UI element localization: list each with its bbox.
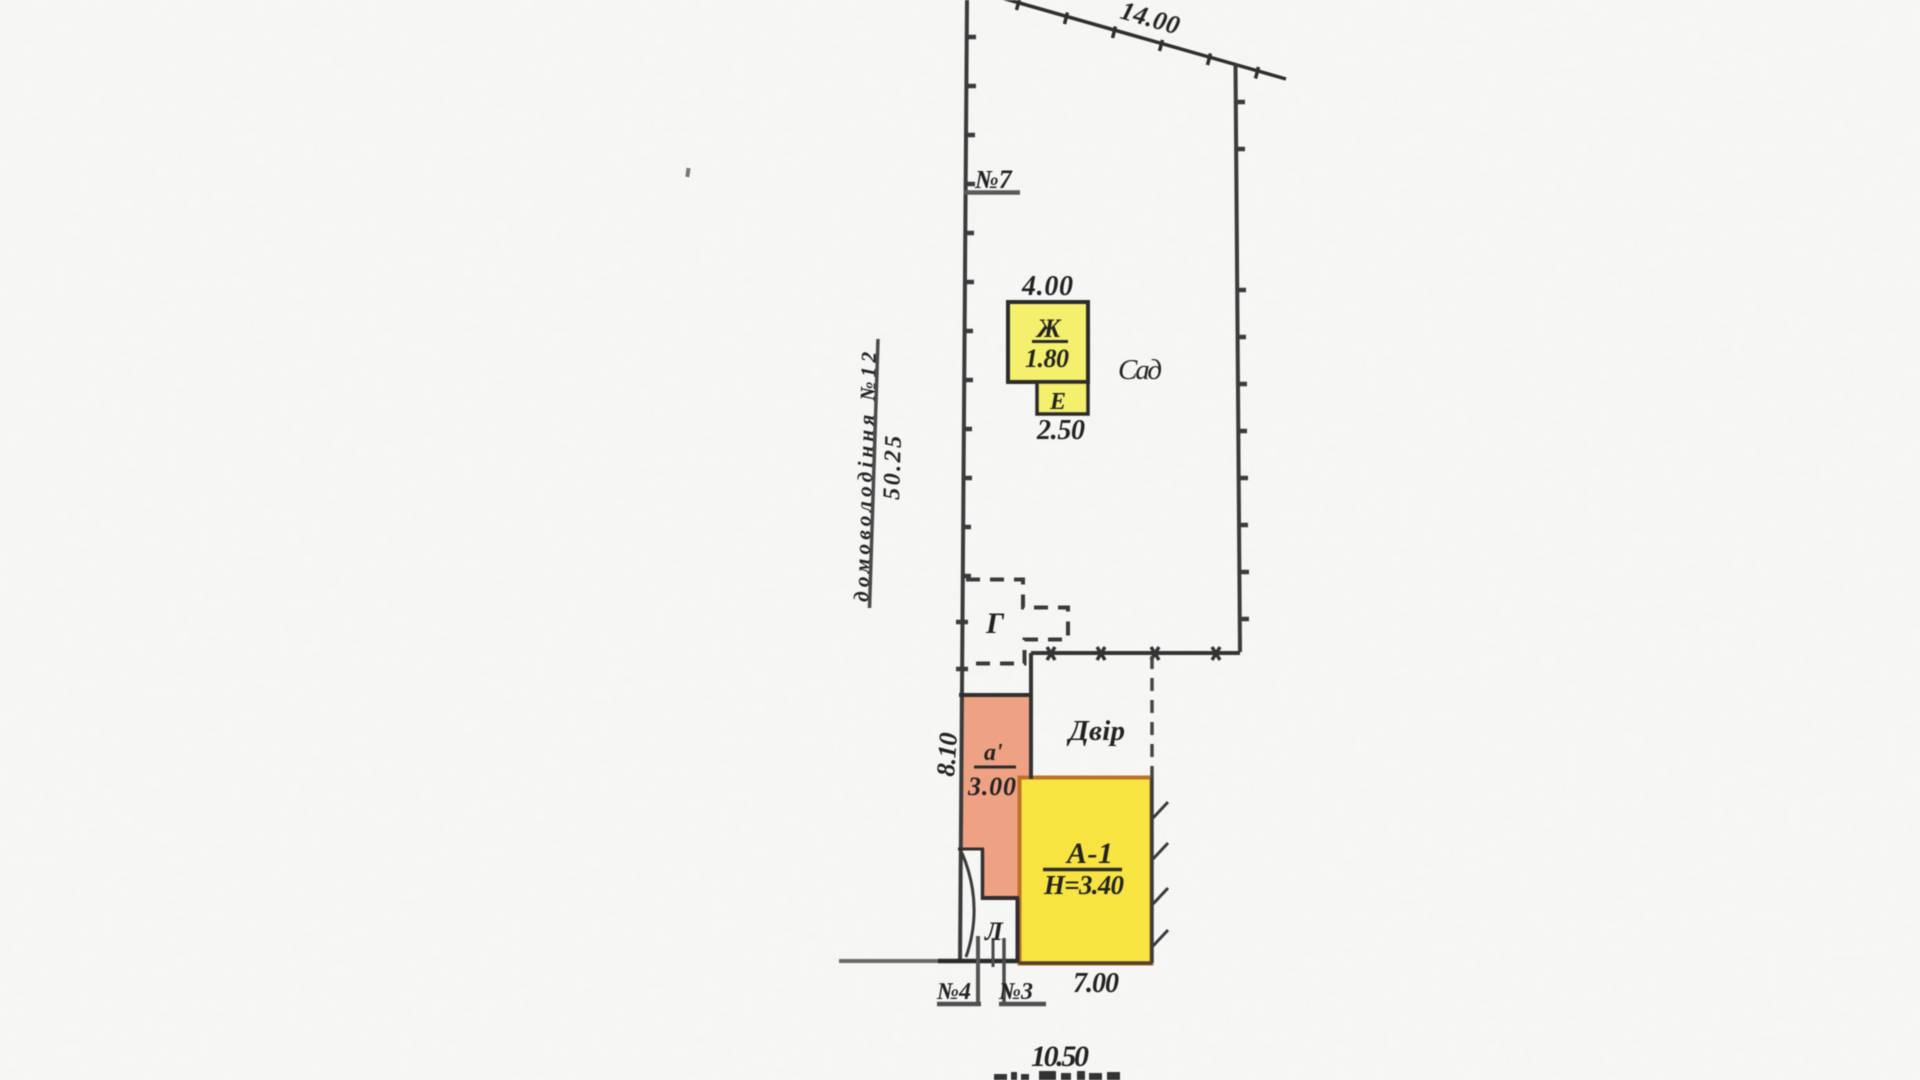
svg-text:Е: Е bbox=[1049, 389, 1066, 415]
svg-text:№7: №7 bbox=[974, 165, 1013, 194]
svg-text:Двір: Двір bbox=[1066, 715, 1125, 747]
svg-text:№4: №4 bbox=[936, 979, 971, 1005]
svg-text:Ж: Ж bbox=[1035, 314, 1062, 343]
svg-text:№3: №3 bbox=[998, 979, 1033, 1005]
svg-text:8.10: 8.10 bbox=[931, 732, 963, 778]
svg-text:1.80: 1.80 bbox=[1025, 344, 1069, 373]
svg-text:4.00: 4.00 bbox=[1021, 271, 1073, 302]
svg-text:Г: Г bbox=[985, 607, 1005, 640]
svg-text:10.50: 10.50 bbox=[1031, 1040, 1089, 1073]
svg-text:3.00: 3.00 bbox=[967, 772, 1016, 801]
svg-text:7.00: 7.00 bbox=[1073, 968, 1119, 999]
svg-text:а': а' bbox=[984, 740, 1003, 766]
svg-text:Сад: Сад bbox=[1118, 354, 1162, 386]
svg-text:50.25: 50.25 bbox=[879, 435, 907, 500]
svg-text:Н=3.40: Н=3.40 bbox=[1043, 870, 1125, 900]
svg-text:А-1: А-1 bbox=[1065, 837, 1113, 870]
svg-text:Л: Л bbox=[984, 917, 1004, 946]
svg-text:2.50: 2.50 bbox=[1036, 415, 1085, 446]
